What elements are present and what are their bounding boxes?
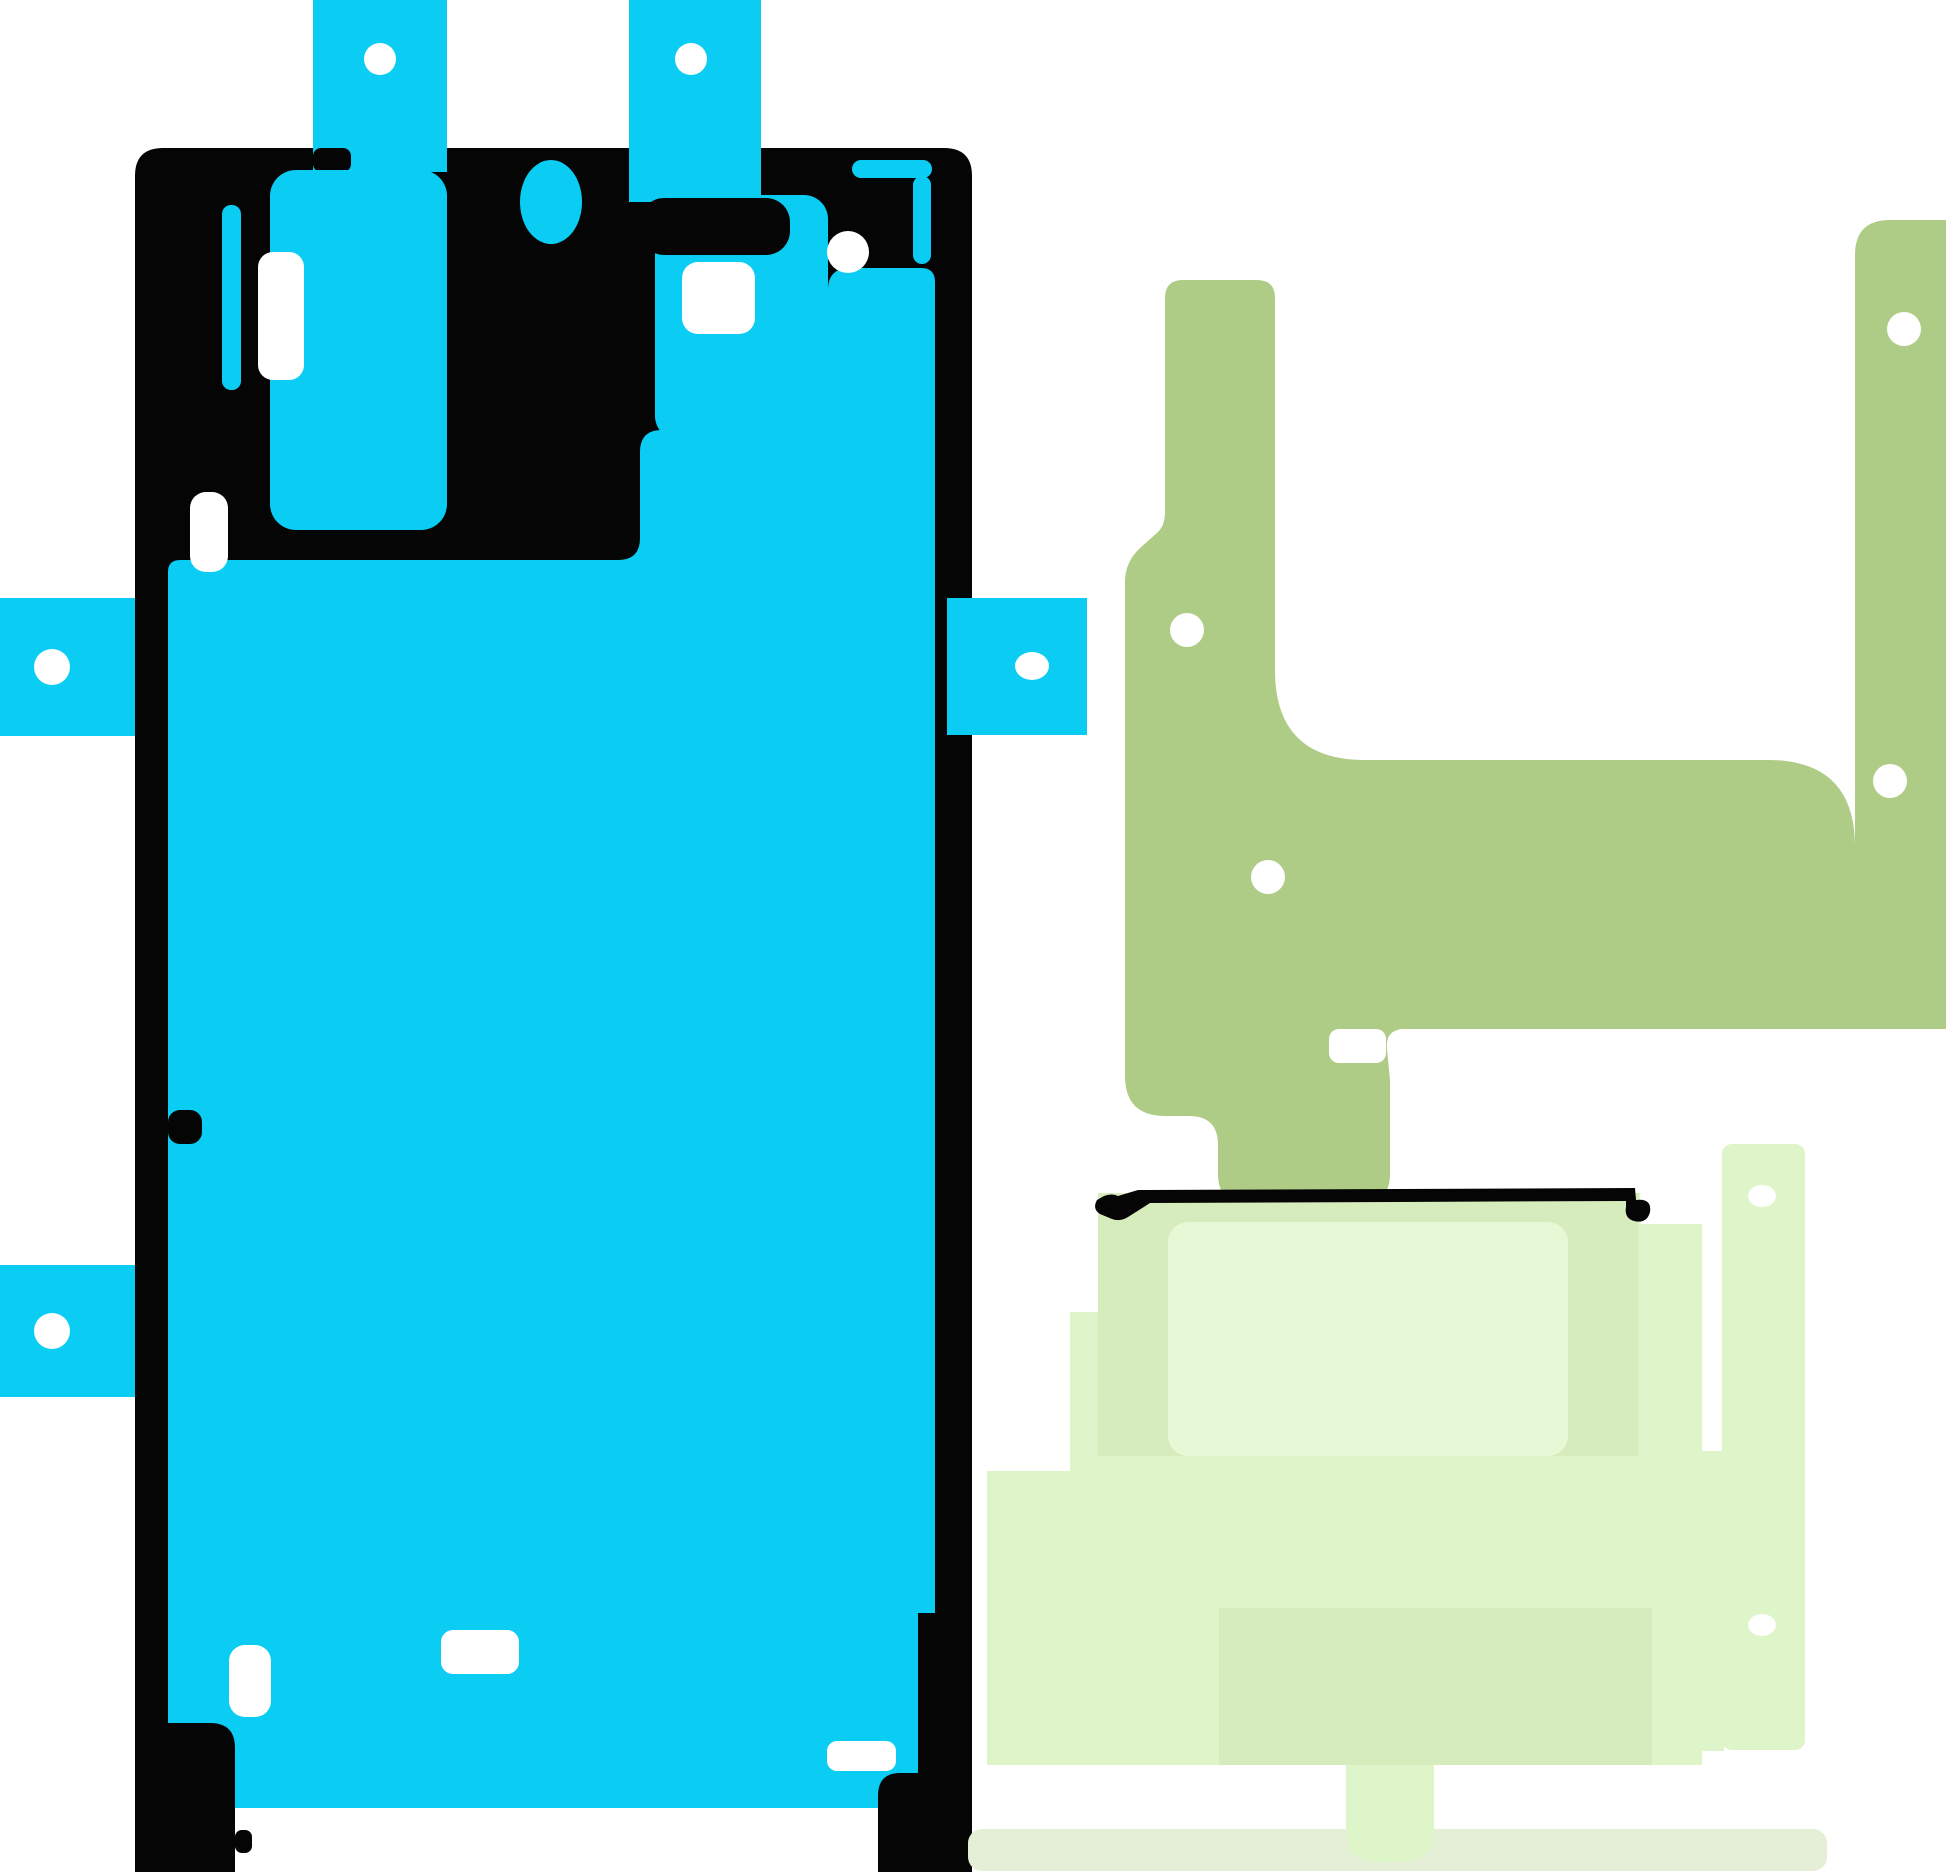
rear-hole-right-arm-bottom bbox=[1873, 764, 1907, 798]
tab-hole-right bbox=[1015, 652, 1049, 680]
pull-tab-top-right bbox=[629, 0, 761, 202]
adhesive-kit-svg bbox=[0, 0, 1946, 1872]
relief-cutout-mid-left bbox=[190, 492, 228, 572]
adhesive-kit-illustration bbox=[0, 0, 1946, 1872]
slot-top-left bbox=[222, 205, 241, 390]
rear-hole-right-arm-top bbox=[1887, 312, 1921, 346]
relief-cutout-bottom-right bbox=[827, 1741, 896, 1771]
stack-hole-bottom bbox=[1748, 1614, 1776, 1636]
relief-cutout-bottom-left bbox=[229, 1645, 271, 1717]
battery-adhesive-stack bbox=[968, 1144, 1827, 1871]
tab-hole-left-lower bbox=[34, 1313, 70, 1349]
bottom-open-gap bbox=[235, 1808, 878, 1872]
rear-adhesive-outline bbox=[1125, 220, 1946, 1203]
stack-hole-top bbox=[1748, 1185, 1776, 1207]
camera-cutout bbox=[520, 160, 582, 244]
rear-adhesive-notch bbox=[1329, 1029, 1386, 1063]
earpiece-cutout bbox=[640, 198, 790, 255]
bottom-left-foot-bump bbox=[235, 1830, 252, 1853]
rear-frame-adhesive bbox=[1125, 220, 1946, 1203]
display-adhesive-sheet bbox=[0, 0, 1087, 1872]
slot-top-right-vertical bbox=[913, 176, 931, 264]
rear-hole-bottom-left bbox=[1251, 860, 1285, 894]
stack-connector bbox=[1700, 1451, 1724, 1751]
stack-inner-highlight-layer bbox=[1168, 1222, 1568, 1456]
tab-hole-top-right bbox=[675, 43, 707, 75]
relief-cutout-bottom-center bbox=[441, 1630, 519, 1674]
bottom-right-corner-block bbox=[878, 1773, 935, 1872]
sensor-hole bbox=[827, 231, 869, 273]
pull-tab-top-left bbox=[313, 0, 447, 172]
stack-bottom-layer-shade bbox=[1219, 1608, 1652, 1765]
frame-bump-left bbox=[168, 1110, 202, 1144]
stack-right-strip bbox=[1722, 1144, 1805, 1750]
tab-hole-left-upper bbox=[34, 649, 70, 685]
rear-hole-left-arm bbox=[1170, 613, 1204, 647]
relief-cutout-top-left bbox=[258, 252, 304, 380]
pull-tab-top-left-notch bbox=[313, 148, 351, 172]
bottom-left-corner-block bbox=[168, 1723, 235, 1872]
slot-top-right-horizontal bbox=[852, 160, 932, 178]
tab-hole-top-left bbox=[364, 43, 396, 75]
relief-cutout-top-center bbox=[682, 262, 755, 334]
